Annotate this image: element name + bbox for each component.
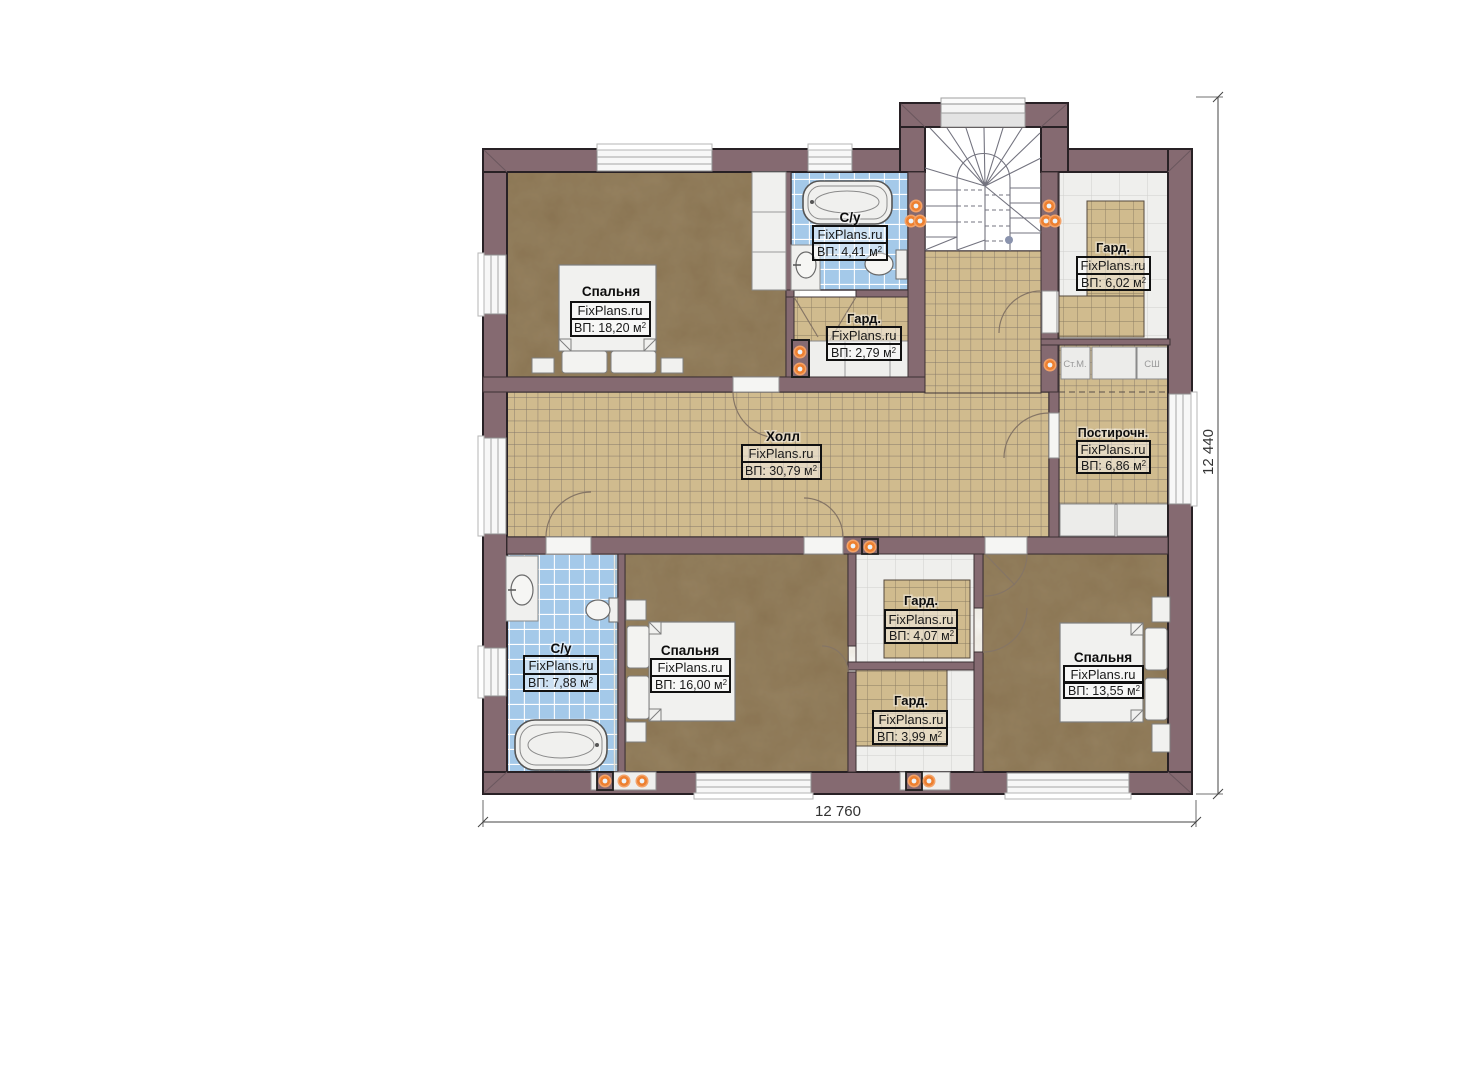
svg-text:FixPlans.ru: FixPlans.ru <box>1070 667 1135 682</box>
svg-text:ВП: 4,07 м2: ВП: 4,07 м2 <box>889 629 955 643</box>
svg-text:FixPlans.ru: FixPlans.ru <box>528 658 593 673</box>
svg-text:FixPlans.ru: FixPlans.ru <box>888 612 953 627</box>
svg-text:ВП: 2,79 м2: ВП: 2,79 м2 <box>831 346 897 360</box>
svg-text:Гард.: Гард. <box>904 593 938 608</box>
svg-text:Спальня: Спальня <box>582 284 640 299</box>
svg-text:FixPlans.ru: FixPlans.ru <box>831 328 896 343</box>
svg-text:ВП: 16,00 м2: ВП: 16,00 м2 <box>655 678 728 692</box>
svg-text:Спальня: Спальня <box>661 643 719 658</box>
svg-text:СШ: СШ <box>1144 359 1160 370</box>
svg-text:ВП: 18,20 м2: ВП: 18,20 м2 <box>574 321 647 335</box>
svg-text:FixPlans.ru: FixPlans.ru <box>878 712 943 727</box>
svg-text:С/у: С/у <box>839 210 861 225</box>
svg-text:FixPlans.ru: FixPlans.ru <box>1080 258 1145 273</box>
svg-text:Холл: Холл <box>766 429 800 444</box>
svg-text:Постирочн.: Постирочн. <box>1078 426 1148 440</box>
svg-text:Спальня: Спальня <box>1074 650 1132 665</box>
svg-text:ВП: 6,86 м2: ВП: 6,86 м2 <box>1081 459 1147 473</box>
svg-text:FixPlans.ru: FixPlans.ru <box>657 660 722 675</box>
svg-text:ВП: 13,55 м2: ВП: 13,55 м2 <box>1068 684 1141 698</box>
svg-text:Гард.: Гард. <box>847 311 881 326</box>
svg-text:FixPlans.ru: FixPlans.ru <box>1080 442 1145 457</box>
svg-text:ВП: 6,02 м2: ВП: 6,02 м2 <box>1081 276 1147 290</box>
svg-text:ВП: 30,79 м2: ВП: 30,79 м2 <box>745 464 818 478</box>
svg-text:FixPlans.ru: FixPlans.ru <box>577 303 642 318</box>
svg-text:FixPlans.ru: FixPlans.ru <box>817 227 882 242</box>
svg-text:12 440: 12 440 <box>1200 429 1217 475</box>
svg-text:ВП: 4,41 м2: ВП: 4,41 м2 <box>817 245 883 259</box>
svg-text:С/у: С/у <box>550 641 572 656</box>
svg-text:Ст.М.: Ст.М. <box>1063 359 1086 370</box>
svg-text:ВП: 3,99 м2: ВП: 3,99 м2 <box>877 730 943 744</box>
svg-text:FixPlans.ru: FixPlans.ru <box>748 446 813 461</box>
svg-text:Гард.: Гард. <box>894 693 928 708</box>
svg-text:Гард.: Гард. <box>1096 240 1130 255</box>
svg-text:12 760: 12 760 <box>815 803 861 820</box>
svg-text:ВП: 7,88 м2: ВП: 7,88 м2 <box>528 676 594 690</box>
